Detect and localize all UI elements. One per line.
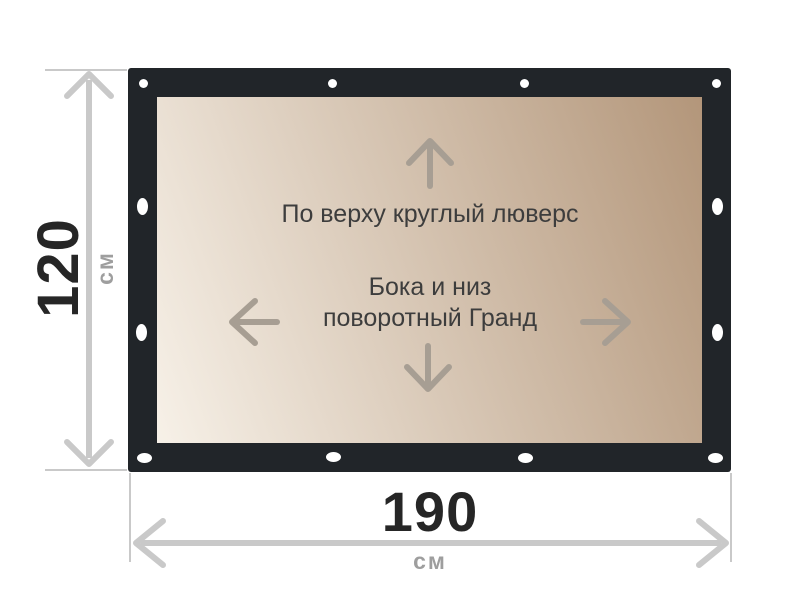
arrow-right-icon — [583, 301, 628, 343]
arrow-up-icon — [409, 141, 451, 186]
arrow-down-icon — [407, 346, 449, 389]
measurement-overlay — [0, 0, 800, 600]
width-dimension-arrow — [136, 521, 726, 565]
arrow-left-icon — [232, 301, 277, 343]
height-dimension-arrow — [67, 74, 111, 464]
product-diagram: По верху круглый люверс Бока и низ повор… — [0, 0, 800, 600]
